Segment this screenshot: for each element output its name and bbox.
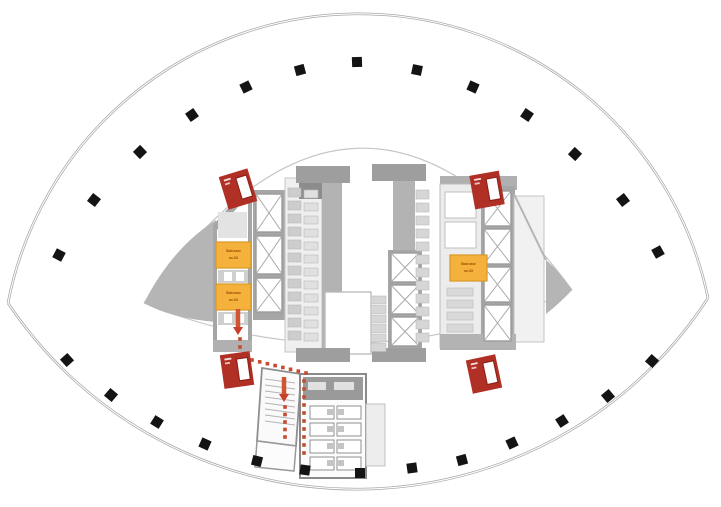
route-dash (304, 371, 308, 375)
fire-exit-marker (220, 351, 254, 389)
fixture (304, 294, 318, 302)
fixture (304, 268, 318, 276)
staircase-label-text: no.XX (229, 256, 239, 260)
desk (337, 406, 361, 419)
fixture (416, 307, 429, 316)
annex-cabinet-slit (308, 382, 326, 390)
left-stair-slot (224, 272, 232, 281)
chair (338, 460, 344, 466)
fixture (416, 255, 429, 264)
route-dash (238, 337, 242, 341)
fixture (288, 201, 301, 210)
perimeter-column (555, 414, 569, 428)
perimeter-column (406, 462, 417, 473)
core-stem-right (393, 181, 415, 253)
fixture (304, 190, 318, 198)
floor-plan-page: Staircaseno.XXStaircaseno.XXStaircaseno.… (0, 0, 721, 507)
route-dash (302, 427, 306, 431)
route-dash (302, 387, 306, 391)
perimeter-column (505, 436, 518, 449)
core-header-right-bar (372, 164, 426, 181)
perimeter-column (520, 108, 534, 122)
lift-shaft-cell (256, 194, 282, 232)
lift-shaft-cell (484, 305, 511, 341)
fixture (288, 240, 301, 249)
perimeter-column (185, 108, 199, 122)
lift-shaft-cell (256, 278, 282, 312)
chair (338, 443, 344, 449)
perimeter-column (239, 80, 252, 93)
fixture (304, 281, 318, 289)
fixture (371, 315, 386, 323)
fixture (371, 334, 386, 342)
perimeter-column (651, 245, 665, 259)
route-dash (289, 367, 293, 371)
perimeter-column (411, 64, 423, 76)
route-dash (302, 443, 306, 447)
fixture (288, 266, 301, 275)
fixture (371, 306, 386, 314)
fixture (416, 216, 429, 225)
route-dash (281, 366, 285, 370)
exit-door-icon (236, 357, 250, 380)
atrium-wedge-left (144, 220, 216, 322)
fixture (288, 292, 301, 301)
route-dash (283, 420, 287, 424)
fire-exit-marker (469, 171, 504, 210)
staircase-label-text: Staircase (461, 262, 476, 266)
staircase-label: Staircaseno.XX (216, 242, 251, 268)
fixture (416, 320, 429, 329)
perimeter-column (456, 454, 468, 466)
floor-plan-svg: Staircaseno.XXStaircaseno.XXStaircaseno.… (0, 0, 721, 507)
route-dash (283, 413, 287, 417)
perimeter-column (87, 193, 101, 207)
fixture (288, 331, 301, 340)
fixture (304, 216, 318, 224)
left-stair-slot (236, 272, 244, 281)
route-dash (302, 395, 306, 399)
desk (310, 457, 334, 470)
fixture (447, 312, 473, 320)
route-dash (302, 451, 306, 455)
lift-shaft-cell (391, 253, 419, 282)
lobby-room (325, 292, 371, 354)
fixture (416, 203, 429, 212)
right-slab-room-2 (445, 222, 476, 248)
route-dash (238, 345, 242, 349)
fixture (416, 294, 429, 303)
perimeter-column (198, 437, 211, 450)
fixture (416, 281, 429, 290)
annex-lower-room (255, 441, 296, 471)
right-slab-room-1 (445, 192, 476, 218)
desk (310, 440, 334, 453)
fixture (288, 227, 301, 236)
lift-shaft-cell (484, 229, 511, 264)
fixture (288, 214, 301, 223)
chair (327, 426, 333, 432)
staircase-label-text: Staircase (226, 291, 241, 295)
route-dash (296, 369, 300, 373)
chair (327, 409, 333, 415)
fixture (447, 324, 473, 332)
staircase-label: Staircaseno.XX (216, 284, 251, 310)
perimeter-column (568, 147, 582, 161)
fixture (304, 242, 318, 250)
fixture (447, 288, 473, 296)
fixture (447, 300, 473, 308)
fixture (371, 344, 386, 352)
fixture (288, 253, 301, 262)
fixture (304, 333, 318, 341)
fixture (416, 268, 429, 277)
route-dash (266, 362, 270, 366)
right-cap-strip (514, 196, 544, 342)
fixture (304, 307, 318, 315)
fixture (304, 203, 318, 211)
chair (338, 409, 344, 415)
fixture (371, 325, 386, 333)
staircase-label: Staircaseno.XX (450, 255, 487, 281)
desk (337, 423, 361, 436)
route-dash (302, 379, 306, 383)
route-dash (302, 403, 306, 407)
annex-cabinet-slit (334, 382, 354, 390)
fixture (416, 229, 429, 238)
route-dash (302, 411, 306, 415)
perimeter-column (150, 415, 164, 429)
left-stair-landing (218, 212, 247, 238)
fixture (304, 229, 318, 237)
chair (327, 443, 333, 449)
perimeter-column (52, 248, 66, 262)
staircase-label-text: no.XX (229, 298, 239, 302)
perimeter-column (616, 193, 630, 207)
fixture (416, 333, 429, 342)
perimeter-column (60, 353, 74, 367)
perimeter-column (466, 80, 479, 93)
route-dash (273, 364, 277, 368)
route-dash (283, 428, 287, 432)
perimeter-column (104, 388, 118, 402)
perimeter-column (645, 354, 659, 368)
route-dash (283, 435, 287, 439)
fire-exit-marker (466, 354, 502, 393)
fixture (288, 318, 301, 327)
fixture (288, 188, 301, 197)
route-dash (302, 419, 306, 423)
fixture (371, 296, 386, 304)
fixture (304, 320, 318, 328)
fixture (304, 255, 318, 263)
perimeter-column (294, 64, 306, 76)
perimeter-column (355, 468, 365, 478)
fixture (288, 279, 301, 288)
core-footer-left-bar (296, 348, 350, 362)
route-dash (283, 405, 287, 409)
core-header-left-bar (296, 166, 350, 183)
chair (338, 426, 344, 432)
fixture (288, 305, 301, 314)
route-dash (258, 360, 262, 364)
desk (310, 423, 334, 436)
perimeter-column (133, 145, 147, 159)
annex-wing (366, 404, 385, 466)
perimeter-column (352, 57, 362, 67)
left-slab-bottom-cap (213, 340, 252, 352)
desk (337, 440, 361, 453)
lift-shaft-cell (391, 317, 419, 346)
chair (327, 460, 333, 466)
route-dash (302, 435, 306, 439)
left-stair-slot (224, 314, 232, 323)
perimeter-column (299, 464, 310, 475)
lift-shaft-cell (484, 267, 511, 302)
atrium-wedge-right (546, 260, 572, 314)
desk (310, 406, 334, 419)
fixture (416, 242, 429, 251)
staircase-label-text: no.XX (464, 269, 474, 273)
lift-shaft-cell (391, 285, 419, 314)
lift-shaft-cell (256, 236, 282, 274)
fixture (416, 190, 429, 199)
staircase-label-text: Staircase (226, 249, 241, 253)
